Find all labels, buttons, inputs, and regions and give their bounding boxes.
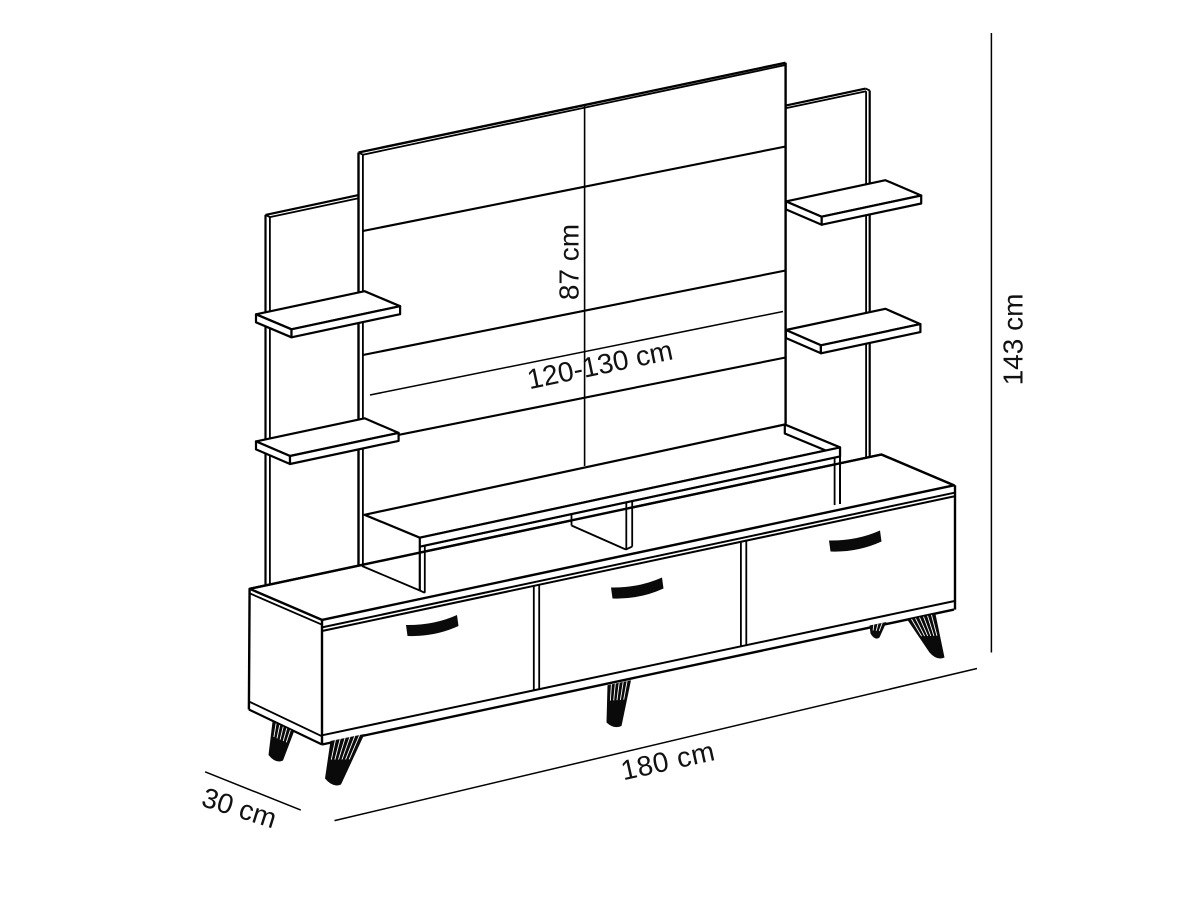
svg-text:87 cm: 87 cm — [554, 224, 585, 300]
svg-text:143 cm: 143 cm — [998, 294, 1029, 386]
